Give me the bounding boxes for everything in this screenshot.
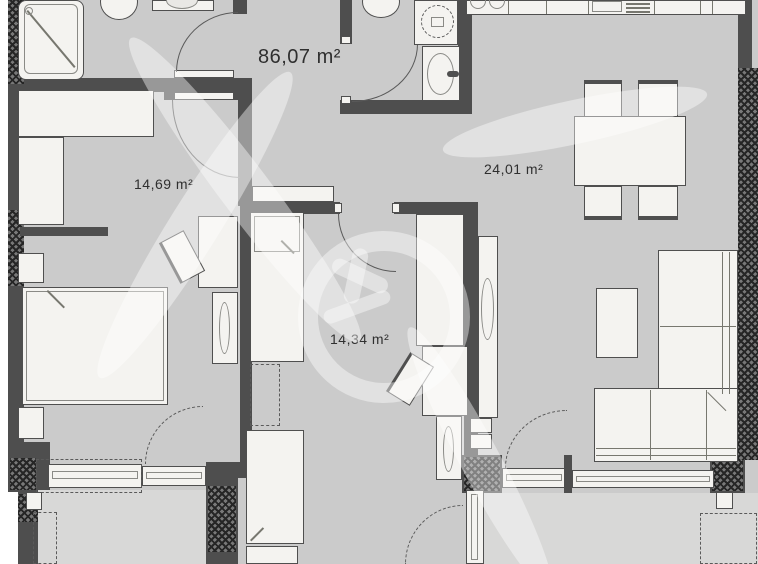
balcony-right-dashed-outline [700, 513, 757, 564]
wardrobe-bedroom-top [18, 90, 154, 137]
wall-balcony-divider-hatch [208, 486, 236, 552]
dining-chair-1 [584, 80, 622, 118]
door-jamb-bathroom2-top [341, 36, 351, 44]
floor-plan: 86,07 m² 14,69 m² 14,34 m² 24,01 m² [0, 0, 758, 564]
dining-chair-2 [638, 80, 678, 118]
dining-chair-4 [638, 186, 678, 220]
window-bedroom-b-glazing [146, 472, 202, 479]
counter-divider-4 [654, 1, 655, 14]
pier-bedroom-sw-hatch [10, 458, 36, 490]
single-bed-1-pillow [254, 216, 300, 252]
area-label-living: 24,01 m² [484, 161, 543, 177]
area-label-bedroom2: 14,34 m² [330, 331, 389, 347]
counter-divider-6 [712, 1, 713, 14]
balcony-left-floor [38, 490, 208, 564]
kitchen-sink-drainer-2 [626, 7, 650, 9]
balcony-left-dashed-outline [33, 512, 57, 564]
dining-chair-3 [584, 186, 622, 220]
single-bed-2-foot [246, 546, 298, 564]
pier-living-se-hatch [712, 457, 743, 491]
wall-bathroom2-south [340, 100, 472, 114]
sofa-cushion-split-h1 [650, 390, 651, 460]
sofa-cushion-split-v [660, 326, 736, 327]
nightstand-2 [18, 407, 44, 439]
counter-divider-5 [700, 1, 701, 14]
outside-corner-bl [0, 490, 18, 564]
dining-table [574, 116, 686, 186]
wardrobe-bedroom-side [18, 137, 64, 225]
desk-bedroom [198, 216, 238, 288]
sofa-horizontal-arm [594, 388, 738, 462]
counter-divider-3 [588, 1, 589, 14]
dining-chair-4-back [638, 216, 678, 220]
wall-bathroom2-east [458, 0, 472, 114]
sofa-back-line-3 [596, 448, 736, 449]
sofa-back-line-4 [596, 455, 736, 456]
sofa-vertical-arm [658, 250, 738, 396]
single-bed-2 [246, 430, 304, 544]
window-mullion-living [564, 455, 572, 493]
radiator-bedroom-fin [219, 302, 230, 354]
duct-box-2 [470, 434, 492, 449]
kitchen-sink-drainer-3 [626, 11, 650, 13]
dining-chair-3-back [584, 216, 622, 220]
wall-right-outer-hatch [738, 68, 758, 460]
desk-bedroom2 [422, 346, 468, 416]
sofa-back-line-2 [729, 252, 730, 394]
kitchen-sink-icon [592, 1, 622, 12]
shelf-bedroom2 [252, 186, 334, 202]
door-jamb-bathroom2-bottom [341, 96, 351, 104]
sofa-back-line-1 [722, 252, 723, 394]
dining-chair-2-back [638, 80, 678, 84]
balcony-door-frame-glazing [471, 494, 478, 560]
radiator-bedroom2-fin [443, 426, 454, 472]
coffee-table [596, 288, 638, 358]
kitchen-sink-drainer-1 [626, 3, 650, 5]
duct-box-1 [470, 418, 492, 433]
pier-living-sw-hatch [464, 457, 500, 491]
shelf-over-bed [20, 227, 108, 236]
sink-tap-bathroom2 [447, 71, 459, 77]
wardrobe-bedroom2 [416, 214, 464, 346]
dining-chair-1-back [584, 80, 622, 84]
wall-bedroom2-north-right [394, 202, 472, 214]
area-label-hall: 86,07 m² [258, 46, 341, 69]
window-living-b-glazing [576, 476, 710, 482]
balcony-post-left [26, 492, 42, 510]
counter-divider-2 [546, 1, 547, 14]
washing-machine-door [431, 17, 444, 27]
door-jamb-bedroom2-right [392, 203, 400, 213]
door-jamb-bedroom2-left [334, 203, 342, 213]
sofa-cushion-split-h2 [706, 390, 707, 460]
double-bed-mattress [26, 291, 164, 401]
wall-hall-bedroom [238, 96, 252, 206]
door-leaf-bedroom [174, 92, 234, 100]
counter-divider-1 [508, 1, 509, 14]
window-bedroom-dashed-outline [36, 459, 142, 493]
pullout-dashed-bedroom2 [250, 364, 280, 426]
outside-left-strip [0, 0, 8, 564]
nightstand-1 [18, 253, 44, 283]
tv-icon [481, 278, 494, 340]
window-living-a-glazing [506, 474, 562, 481]
balcony-post-right [716, 492, 733, 509]
shower-drain-icon [25, 7, 33, 15]
area-label-bedroom: 14,69 m² [134, 176, 193, 192]
